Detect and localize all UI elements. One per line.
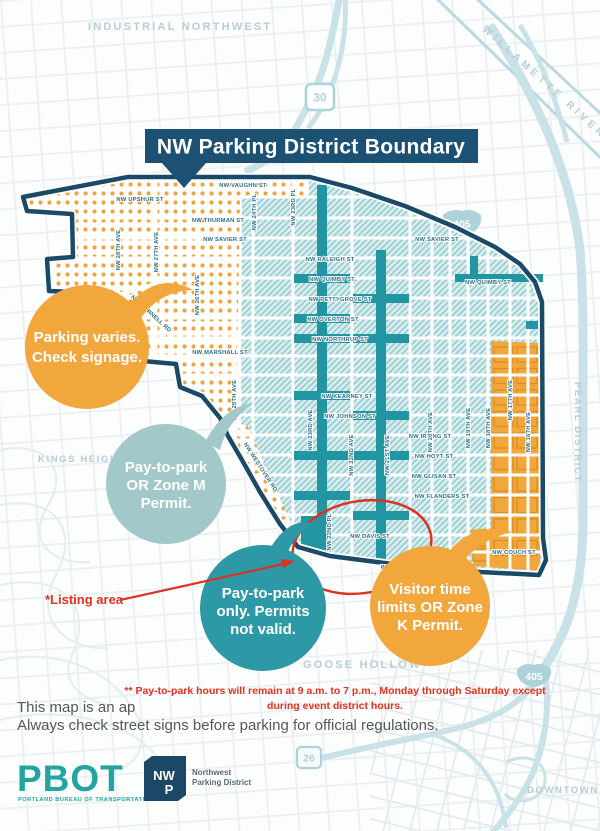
- street-label: NW HOYT ST: [415, 454, 454, 460]
- street-label: NW 20TH AVE: [428, 412, 434, 453]
- street-label: NW COUCH ST: [492, 550, 536, 556]
- street-label: NW MARSHALL ST: [192, 350, 248, 356]
- street-label: NW 21ST AVE: [385, 435, 391, 475]
- street-label: NW QUIMBY ST: [465, 280, 511, 286]
- street-label: NW SAVIER ST: [203, 237, 247, 243]
- street-label: NW KEARNEY ST: [321, 394, 372, 400]
- street-label: NW 23RD AVE: [308, 409, 314, 450]
- highway-shield-us30: 30: [306, 84, 334, 110]
- street-label: NW 16TH AVE: [526, 412, 532, 453]
- street-label: NW NORTHRUP ST: [312, 337, 368, 343]
- nwp-logo-letter-p: P: [165, 782, 174, 797]
- page-title: NW Parking District Boundary: [157, 136, 465, 159]
- nwp-logo-letters-nw: NW: [153, 768, 175, 783]
- label-pearl-district: PEARL DISTRICT: [572, 382, 583, 483]
- callout-pay-only-line3: not valid.: [230, 621, 296, 638]
- street-label: NW 19TH AVE: [466, 408, 472, 449]
- callout-zone-m-line3: Permit.: [141, 495, 192, 512]
- shield-i405-bottom-label: 405: [525, 671, 543, 683]
- street-label: NW VAUGHN ST: [219, 183, 267, 189]
- callout-zone-m-line1: Pay-to-park: [125, 459, 208, 476]
- shield-us30-label: 30: [313, 91, 327, 105]
- highway-shield-us26: 26: [297, 747, 321, 768]
- street-label: NW SAVIER ST: [415, 237, 459, 243]
- callout-zone-k-line3: K Permit.: [397, 617, 463, 634]
- nw-parking-district-map: 30 405 405 26 INDUSTRIAL NORTHWEST WILLA…: [0, 0, 600, 831]
- pbot-logo-subtext: PORTLAND BUREAU OF TRANSPORTATION: [18, 797, 154, 803]
- street-label: NW QUIMBY ST: [309, 277, 355, 283]
- label-downtown: DOWNTOWN: [527, 785, 599, 796]
- pay-hours-note-line1: ** Pay-to-park hours will remain at 9 a.…: [124, 685, 546, 697]
- street-label: NW FLANDERS ST: [415, 494, 470, 500]
- street-label: NW PETTYGROVE ST: [308, 297, 371, 303]
- street-label: NW 17TH AVE: [508, 380, 514, 421]
- listing-area-label: *Listing area: [45, 592, 124, 607]
- pay-hours-note-line2: during event district hours.: [267, 700, 403, 712]
- callout-zone-k-line1: Visitor time: [389, 581, 470, 598]
- callout-parking-varies-line1: Parking varies.: [34, 329, 141, 346]
- label-industrial-northwest: INDUSTRIAL NORTHWEST: [88, 21, 272, 33]
- street-label: NW 24TH PL: [252, 194, 258, 231]
- street-label: NW 22ND PL: [327, 513, 333, 550]
- street-label: NW UPSHUR ST: [116, 197, 163, 203]
- pbot-logo-text: PBOT: [17, 758, 124, 799]
- street-label: NW 18TH AVE: [486, 408, 492, 449]
- nwp-name-line1: Northwest: [192, 768, 231, 777]
- street-label: NW THURMAN ST: [192, 218, 244, 224]
- street-label: NW 23RD PL: [291, 188, 297, 225]
- map-canvas: 30 405 405 26 INDUSTRIAL NORTHWEST WILLA…: [0, 0, 600, 831]
- street-label: NW 22ND AVE: [349, 434, 355, 475]
- callout-zone-k-line2: limits OR Zone: [377, 599, 483, 616]
- disclaimer-line2: Always check street signs before parking…: [17, 717, 439, 734]
- street-label: NW OVERTON ST: [307, 317, 359, 323]
- street-label: NW DAVIS ST: [350, 534, 390, 540]
- street-label: NW 26TH AVE: [195, 275, 201, 316]
- callout-zone-m-line2: OR Zone M: [126, 477, 205, 494]
- nwp-name-line2: Parking District: [192, 778, 251, 787]
- shield-us26-label: 26: [303, 753, 315, 765]
- street-label: NW RALEIGH ST: [306, 257, 355, 263]
- street-label: NW JOHNSON ST: [324, 414, 376, 420]
- callout-pay-only-line1: Pay-to-park: [222, 585, 305, 602]
- street-label: NW GLISAN ST: [412, 474, 457, 480]
- street-label: NW 27TH AVE: [154, 232, 160, 273]
- disclaimer-line1: This map is an ap: [17, 699, 135, 716]
- callout-parking-varies-line2: Check signage.: [32, 349, 142, 366]
- street-label: NW 28TH AVE: [116, 230, 122, 271]
- label-goose-hollow: GOOSE HOLLOW: [303, 659, 422, 671]
- callout-pay-only-line2: only. Permits: [216, 603, 309, 620]
